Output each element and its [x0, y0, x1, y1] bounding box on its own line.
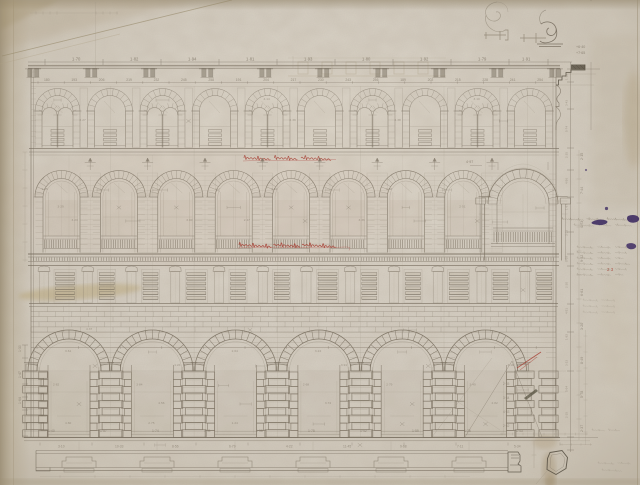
- svg-text:1·75: 1·75: [308, 429, 315, 433]
- svg-text:3·23: 3·23: [72, 218, 78, 222]
- svg-text:243: 243: [345, 78, 351, 82]
- svg-text:2·35: 2·35: [503, 382, 510, 386]
- svg-text:4·51: 4·51: [565, 308, 569, 314]
- svg-text:1·74: 1·74: [152, 429, 159, 433]
- svg-text:4·91: 4·91: [271, 187, 277, 191]
- svg-text:2·15: 2·15: [580, 153, 584, 160]
- svg-text:2·51: 2·51: [459, 205, 465, 209]
- svg-text:193: 193: [71, 78, 77, 82]
- svg-text:256: 256: [373, 78, 379, 82]
- svg-text:1·82: 1·82: [130, 57, 139, 62]
- svg-text:232: 232: [154, 78, 160, 82]
- svg-text:4·53: 4·53: [503, 410, 510, 414]
- svg-text:1·12: 1·12: [565, 74, 569, 80]
- svg-text:6·61: 6·61: [580, 289, 584, 296]
- svg-text:3·29: 3·29: [58, 205, 64, 209]
- svg-text:2·25: 2·25: [565, 152, 569, 158]
- svg-text:3·10: 3·10: [474, 97, 480, 101]
- svg-text:3·10: 3·10: [58, 445, 65, 449]
- svg-text:2 3: 2 3: [607, 267, 614, 272]
- svg-text:2·37: 2·37: [580, 425, 584, 432]
- svg-text:4·18: 4·18: [508, 363, 514, 367]
- svg-text:5·69: 5·69: [565, 256, 569, 262]
- svg-text:2·79: 2·79: [386, 383, 392, 387]
- svg-text:1·40: 1·40: [48, 429, 55, 433]
- svg-text:254: 254: [537, 78, 543, 82]
- svg-text:258: 258: [208, 78, 214, 82]
- svg-text:217: 217: [291, 78, 297, 82]
- svg-text:202: 202: [428, 78, 434, 82]
- svg-text:215: 215: [455, 78, 461, 82]
- svg-text:11·45: 11·45: [343, 445, 351, 449]
- svg-text:4·56: 4·56: [158, 401, 164, 405]
- svg-text:5·78: 5·78: [580, 391, 584, 398]
- svg-text:1·43: 1·43: [516, 429, 523, 433]
- svg-text:204: 204: [263, 78, 269, 82]
- svg-text:1·57: 1·57: [100, 429, 107, 433]
- svg-text:1·93: 1·93: [304, 57, 313, 62]
- svg-text:7·11: 7·11: [457, 445, 464, 449]
- svg-text:2·82: 2·82: [53, 383, 59, 387]
- svg-text:219: 219: [126, 78, 132, 82]
- svg-text:1·82: 1·82: [565, 334, 569, 340]
- svg-text:2·27: 2·27: [80, 118, 86, 122]
- svg-text:7·44: 7·44: [580, 187, 584, 194]
- svg-text:1·91: 1·91: [522, 57, 531, 62]
- svg-text:228: 228: [482, 78, 488, 82]
- svg-text:3·38: 3·38: [565, 230, 569, 236]
- svg-text:2·75: 2·75: [148, 421, 154, 425]
- svg-text:1·59: 1·59: [412, 429, 419, 433]
- svg-text:1·47: 1·47: [18, 371, 22, 378]
- svg-text:1·30: 1·30: [18, 345, 22, 352]
- svg-text:9·68: 9·68: [400, 445, 407, 449]
- svg-text:245: 245: [181, 78, 187, 82]
- svg-text:3·20: 3·20: [580, 323, 584, 330]
- svg-text:4·14: 4·14: [264, 97, 270, 101]
- svg-text:1·64: 1·64: [18, 397, 22, 404]
- svg-text:3·44: 3·44: [503, 396, 510, 400]
- svg-text:3·91: 3·91: [341, 363, 347, 367]
- svg-text:2·62: 2·62: [503, 424, 510, 428]
- svg-text:4·58: 4·58: [386, 187, 392, 191]
- svg-text:191: 191: [236, 78, 242, 82]
- svg-text:5·74: 5·74: [565, 126, 569, 132]
- svg-text:3·49: 3·49: [470, 383, 476, 387]
- svg-text:+7·65: +7·65: [576, 51, 585, 55]
- svg-text:1·24: 1·24: [174, 363, 180, 367]
- svg-text:8·56: 8·56: [172, 445, 179, 449]
- svg-text:2·82: 2·82: [492, 401, 498, 405]
- svg-text:1·79: 1·79: [478, 57, 487, 62]
- svg-text:3·61: 3·61: [65, 349, 71, 353]
- svg-text:4·37: 4·37: [86, 327, 92, 331]
- svg-text:2·68: 2·68: [303, 383, 309, 387]
- svg-text:2·39: 2·39: [290, 118, 296, 122]
- svg-text:241: 241: [510, 78, 516, 82]
- svg-text:3·33: 3·33: [565, 360, 569, 366]
- svg-text:4·56: 4·56: [565, 178, 569, 184]
- svg-text:230: 230: [318, 78, 324, 82]
- svg-text:8·49: 8·49: [580, 357, 584, 364]
- svg-text:2·64: 2·64: [232, 349, 238, 353]
- svg-text:5·64: 5·64: [565, 386, 569, 392]
- svg-text:2·20: 2·20: [565, 282, 569, 288]
- svg-text:3·74: 3·74: [325, 401, 331, 405]
- svg-text:3·43: 3·43: [565, 100, 569, 106]
- svg-text:4·97: 4·97: [466, 160, 473, 164]
- svg-text:3·24: 3·24: [315, 349, 321, 353]
- svg-text:1·92: 1·92: [420, 57, 429, 62]
- svg-text:1·80: 1·80: [362, 57, 371, 62]
- svg-text:10·33: 10·33: [115, 445, 124, 449]
- svg-text:3·90: 3·90: [186, 218, 192, 222]
- svg-text:5·34: 5·34: [514, 445, 521, 449]
- svg-text:1·55: 1·55: [42, 187, 48, 191]
- svg-text:4·38: 4·38: [395, 118, 401, 122]
- svg-text:1·42: 1·42: [360, 429, 367, 433]
- svg-text:3·84: 3·84: [136, 383, 142, 387]
- svg-text:180: 180: [44, 78, 50, 82]
- svg-text:4·60: 4·60: [65, 421, 71, 425]
- svg-text:1·70: 1·70: [72, 57, 81, 62]
- svg-text:+6·40: +6·40: [576, 45, 585, 49]
- svg-text:1·81: 1·81: [246, 57, 255, 62]
- svg-text:3·36: 3·36: [359, 218, 365, 222]
- svg-text:1·94: 1·94: [188, 57, 197, 62]
- svg-text:6·79: 6·79: [229, 445, 236, 449]
- svg-text:206: 206: [99, 78, 105, 82]
- svg-text:2·47: 2·47: [244, 218, 250, 222]
- svg-text:4·22: 4·22: [286, 445, 293, 449]
- svg-text:1·24: 1·24: [232, 421, 238, 425]
- svg-text:1·58: 1·58: [256, 429, 263, 433]
- svg-text:2·15: 2·15: [565, 412, 569, 418]
- svg-text:1·41: 1·41: [204, 429, 211, 433]
- svg-text:1·87: 1·87: [565, 204, 569, 210]
- svg-text:189: 189: [400, 78, 406, 82]
